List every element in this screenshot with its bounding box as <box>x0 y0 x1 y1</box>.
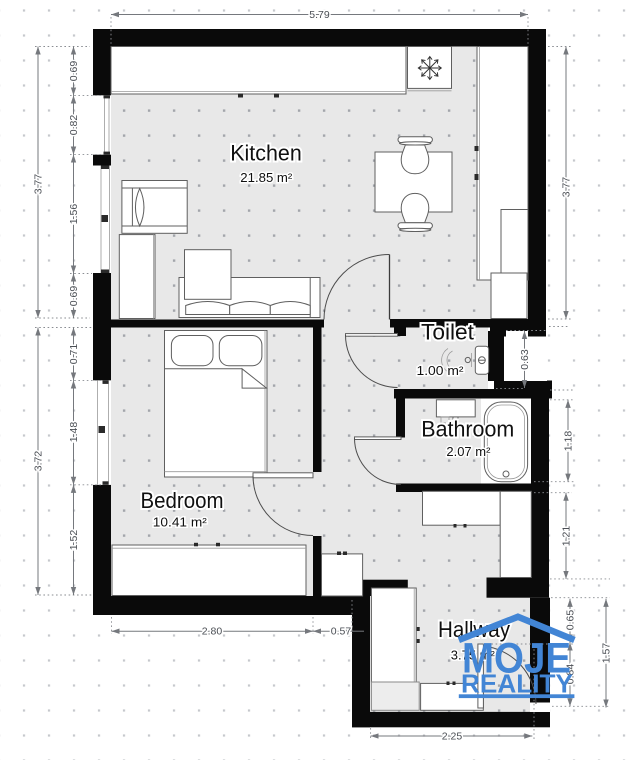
svg-text:1.48: 1.48 <box>68 422 80 443</box>
svg-text:1.21: 1.21 <box>561 526 573 547</box>
svg-text:3.77: 3.77 <box>561 177 573 198</box>
svg-text:0.63: 0.63 <box>519 349 531 370</box>
svg-text:Kitchen: Kitchen <box>230 141 302 166</box>
svg-text:1.56: 1.56 <box>68 204 80 225</box>
svg-text:1.18: 1.18 <box>563 431 575 452</box>
svg-text:Bedroom: Bedroom <box>141 488 224 513</box>
svg-text:1.00 m²: 1.00 m² <box>417 363 465 378</box>
svg-text:2.07 m²: 2.07 m² <box>446 444 491 459</box>
svg-text:REALITY: REALITY <box>461 669 573 699</box>
svg-text:0.57: 0.57 <box>331 626 352 638</box>
svg-text:1.57: 1.57 <box>601 643 613 664</box>
svg-text:21.85 m²: 21.85 m² <box>240 170 293 185</box>
svg-text:0.69: 0.69 <box>68 286 80 307</box>
svg-text:Toilet: Toilet <box>421 320 475 345</box>
svg-text:3.72: 3.72 <box>33 451 45 472</box>
svg-text:0.69: 0.69 <box>68 61 80 82</box>
svg-text:0.82: 0.82 <box>68 115 80 136</box>
svg-text:5.79: 5.79 <box>309 9 330 21</box>
svg-text:Bathroom: Bathroom <box>421 417 514 442</box>
svg-text:0.65: 0.65 <box>565 610 577 631</box>
svg-text:1.52: 1.52 <box>68 530 80 551</box>
svg-text:10.41 m²: 10.41 m² <box>153 515 208 530</box>
svg-text:0.71: 0.71 <box>68 344 80 365</box>
svg-text:2.25: 2.25 <box>442 731 463 743</box>
svg-text:3.77: 3.77 <box>33 174 45 195</box>
svg-text:2.80: 2.80 <box>202 626 223 638</box>
